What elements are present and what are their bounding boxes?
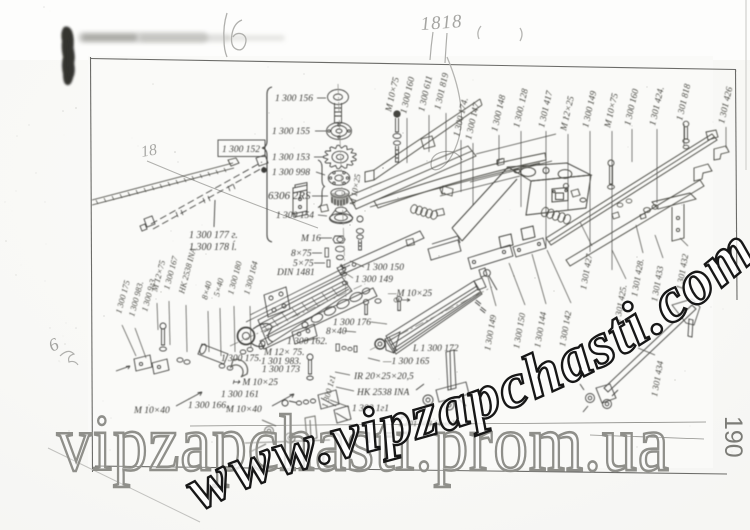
svg-text:190: 190 xyxy=(719,416,747,458)
svg-text:1 300 152: 1 300 152 xyxy=(222,145,260,155)
svg-text:—1 300 165: —1 300 165 xyxy=(382,357,430,367)
svg-text:L 1 300 172: L 1 300 172 xyxy=(412,344,459,354)
svg-text:1 300 173: 1 300 173 xyxy=(262,365,300,375)
svg-text:IR 20×25×20,5: IR 20×25×20,5 xyxy=(353,372,414,382)
svg-text:1 300 175.: 1 300 175. xyxy=(221,354,261,364)
svg-text:1 300 155: 1 300 155 xyxy=(272,127,310,137)
svg-text:—M 10×25: —M 10×25 xyxy=(387,289,432,299)
svg-text:1 300 150: 1 300 150 xyxy=(366,263,404,273)
svg-text:DIN 1481: DIN 1481 xyxy=(276,268,315,278)
svg-text:1 300 156: 1 300 156 xyxy=(275,94,313,104)
svg-text:M 16: M 16 xyxy=(300,234,321,244)
svg-text:1 300 153: 1 300 153 xyxy=(272,153,310,163)
svg-text:1 300 161: 1 300 161 xyxy=(221,390,259,400)
svg-text:8×40: 8×40 xyxy=(326,327,347,337)
svg-text:↦ M 10×25: ↦ M 10×25 xyxy=(232,378,278,388)
svg-text:18: 18 xyxy=(140,141,159,161)
svg-text:6306 2RS: 6306 2RS xyxy=(268,190,311,202)
svg-text:1 300 149: 1 300 149 xyxy=(355,275,393,285)
svg-text:1 300 162.: 1 300 162. xyxy=(287,337,327,347)
svg-text:1 300 998: 1 300 998 xyxy=(272,168,310,178)
svg-text:1818: 1818 xyxy=(420,11,463,35)
svg-text:1 300 177 г.: 1 300 177 г. xyxy=(189,230,238,241)
svg-text:8×75: 8×75 xyxy=(291,249,312,259)
